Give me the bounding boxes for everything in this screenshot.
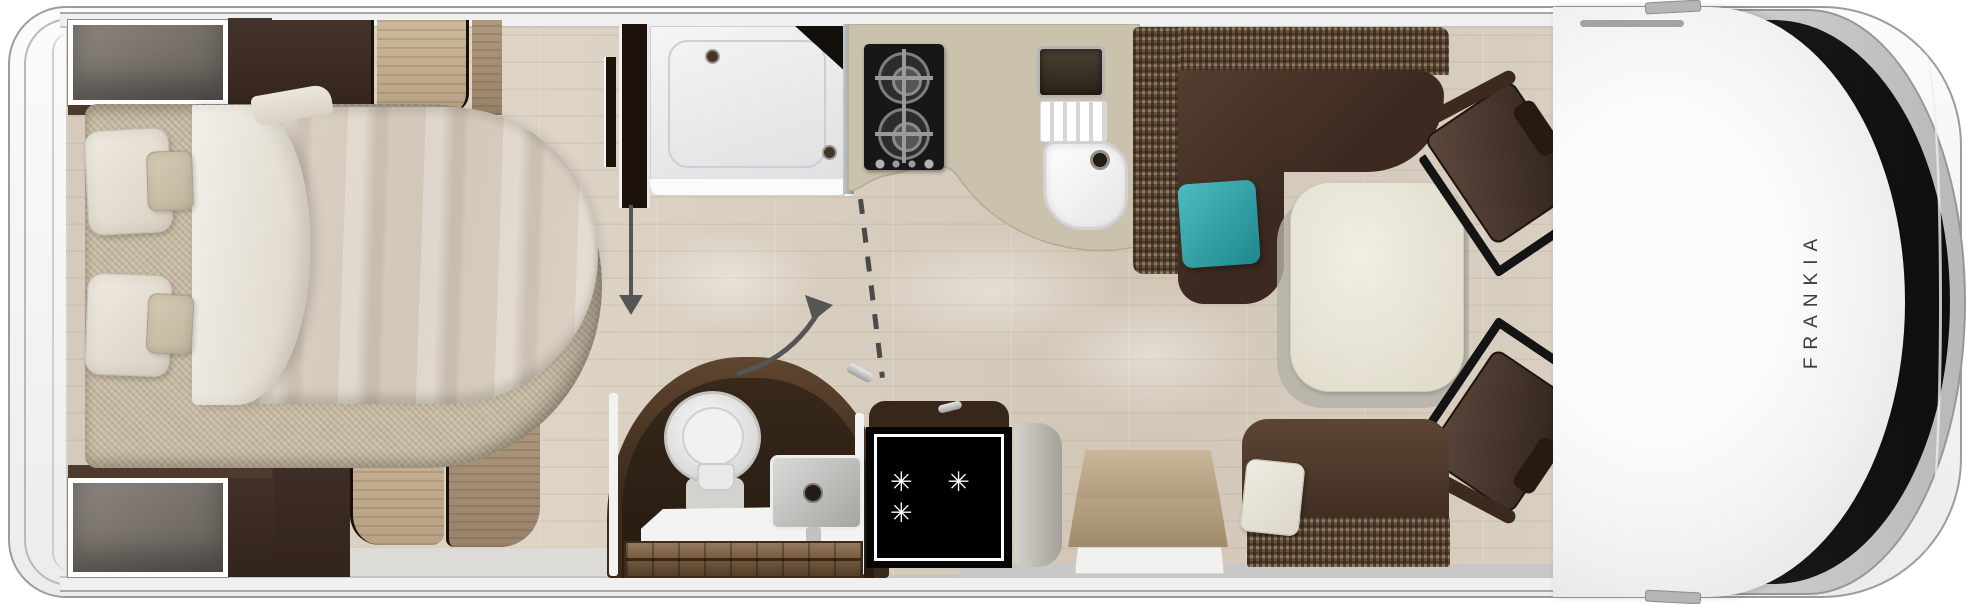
bumper-trim-line [1906,52,1942,552]
wardrobe-rear-top [68,20,228,105]
cooktop-knobs [874,158,936,170]
roof-seam [1580,20,1684,27]
bathroom-sink-drain [803,483,823,503]
shower-door-panel-outer [604,57,616,167]
overhead-cabinet-door-light-top [377,20,469,112]
kitchen-sink-drain [1090,150,1110,170]
entry-step-upper [1068,450,1228,499]
shower-door-panel-inner [619,24,650,208]
burner-icon [878,108,930,160]
entry-step-tread [1075,547,1224,574]
vanity-drawers [624,541,863,578]
teal-cushion [1177,179,1261,268]
sink-drainer [1040,101,1107,142]
brand-label: FRANKIA [1798,235,1826,365]
bench-pillow [1239,458,1305,537]
toilet-front [697,463,735,491]
side-mirror-bottom [1645,590,1702,604]
overhead-cabinet-door-mid-top [472,20,502,115]
pillow-small-bottom [145,293,194,355]
fridge-side-panel [1014,423,1062,567]
freezer-stars-icon: ✳ ✳ ✳ [877,467,1001,529]
motorhome-floorplan: ✳ ✳ ✳ FRANKIA [0,0,1970,604]
pillow-small-top [146,150,194,212]
shower-tray-outline [668,40,826,168]
refrigerator-door: ✳ ✳ ✳ [874,434,1004,561]
sofa-backrest-left [1133,27,1180,274]
dinette-table [1290,182,1464,392]
sofa-backrest-top [1133,27,1449,75]
toilet-seat [682,407,744,467]
wall-bottom [60,576,1620,592]
floor-highlight [1040,290,1260,420]
door-swing-arrow-icon [733,293,837,379]
kitchen-sink [1043,141,1128,230]
bathroom-door-post-left [609,393,618,576]
wardrobe-rear-bottom [68,478,228,577]
entry-step-lower [1068,499,1228,547]
shower-drain [705,49,720,64]
down-arrow-icon [629,205,633,297]
bed-cabinet-column-bottom [228,462,274,577]
shower-drain [822,145,837,160]
shower-sill [650,178,848,195]
counter-insert [1037,46,1105,98]
burner-icon [878,52,930,104]
